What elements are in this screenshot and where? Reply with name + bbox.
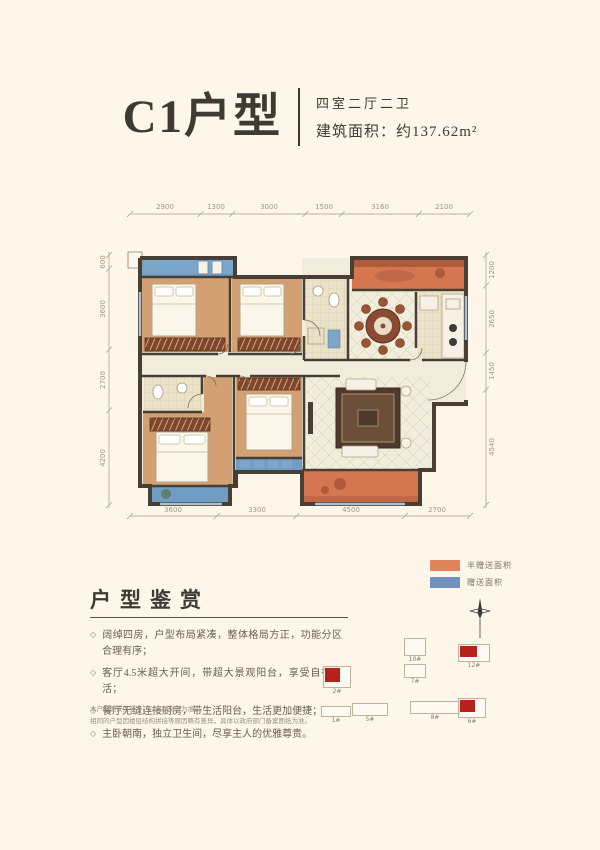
dim-right-4: 4540 [488,438,496,456]
review-heading: 户型鉴赏 [90,584,210,614]
bullet-text: 主卧朝南，独立卫生间，尽享主人的优雅尊贵。 [102,727,312,743]
dim-left-2: 3600 [99,300,107,318]
legend-half-gift: 半赠送面积 [430,560,512,571]
dim-bottom-3: 4500 [342,506,360,514]
rooms-spec: 四室二厅二卫 [316,93,477,112]
dim-right-3: 1450 [488,362,496,380]
gift-label: 赠送面积 [467,577,503,588]
half-gift-label: 半赠送面积 [467,560,512,571]
compass-icon [465,598,495,640]
building-highlighted: 6# [458,698,486,718]
header: C1户型 四室二厅二卫 建筑面积：约137.62m² [0,88,600,146]
dim-top-6: 2100 [435,203,453,211]
header-divider [298,88,300,146]
dim-left-1: 600 [99,255,107,268]
disclaimer-line: 本户型图仅供参考，以实际交付为准。 [90,704,340,716]
bullet-marker: ◇ [90,729,96,743]
building: 8# [410,701,460,714]
toilet-1 [329,293,339,307]
bed-2 [240,284,284,336]
disclaimer-line: 相同的户型因楼层结构拼接等原因略有差异，具体以政府部门备案图纸为准。 [90,716,340,728]
half-gift-swatch [430,560,460,571]
bullet-marker: ◇ [90,668,96,697]
building-label: 5# [366,716,375,723]
bullet-text: 阔绰四房，户型布局紧凑，整体格局方正，功能分区合理有序； [102,628,342,659]
building: 5# [352,703,388,716]
dim-top-4: 1500 [315,203,333,211]
sink-1 [313,286,323,296]
dim-top-5: 3160 [371,203,389,211]
building-marker [325,668,340,682]
disclaimer: 本户型图仅供参考，以实际交付为准。 相同的户型因楼层结构拼接等原因略有差异，具体… [90,704,340,729]
building-label: 12# [468,662,481,669]
legend: 半赠送面积 赠送面积 [430,560,512,588]
building-label: 2# [333,688,342,695]
dim-left-3: 2700 [99,371,107,389]
building: 7# [404,664,426,678]
dim-right-1: 1200 [488,261,496,279]
bullet-marker: ◇ [90,630,96,659]
building: 1# [321,706,351,717]
dim-left-4: 4200 [99,449,107,467]
wardrobe-1 [145,338,225,351]
header-subtitle: 四室二厅二卫 建筑面积：约137.62m² [316,93,477,141]
floor-plan [85,195,515,530]
bullet-item: ◇ 阔绰四房，户型布局紧凑，整体格局方正，功能分区合理有序； [90,628,342,659]
dim-bottom-1: 3600 [164,506,182,514]
dining-table [355,298,412,355]
building-marker [460,646,477,657]
bed-3 [238,378,300,450]
building-highlighted: 12# [458,644,490,662]
bullet-item: ◇ 主卧朝南，独立卫生间，尽享主人的优雅尊贵。 [90,727,342,743]
gift-swatch [430,577,460,588]
building-highlighted: 2# [323,666,351,688]
review-rule [90,617,348,618]
review-bullets: ◇ 阔绰四房，户型布局紧凑，整体格局方正，功能分区合理有序； ◇ 客厅4.5米超… [90,628,342,749]
unit-title: C1户型 [123,94,282,141]
bed-1 [152,284,196,336]
dim-top-3: 3000 [260,203,278,211]
bed-master [150,418,210,482]
building-label: 8# [431,714,440,721]
area-spec: 建筑面积：约137.62m² [316,120,477,141]
building-label: 1# [332,717,341,724]
building-label: 6# [468,718,477,725]
wardrobe-2 [238,338,300,351]
building: 10# [404,638,426,656]
floorplan-flyer: C1户型 四室二厅二卫 建筑面积：约137.62m² [0,0,600,850]
building-label: 10# [409,656,422,663]
sink-master [177,383,187,393]
dim-bottom-2: 3300 [248,506,266,514]
bullet-item: ◇ 客厅4.5米超大开间，带超大景观阳台，享受自在生活； [90,666,342,697]
bullet-text: 客厅4.5米超大开间，带超大景观阳台，享受自在生活； [102,666,342,697]
building-marker [460,700,475,712]
legend-gift: 赠送面积 [430,577,512,588]
toilet-master [153,385,163,399]
dim-bottom-4: 2700 [428,506,446,514]
building-label: 7# [411,678,420,685]
dim-top-2: 1300 [207,203,225,211]
dim-top-1: 2900 [156,203,174,211]
dim-right-2: 2650 [488,310,496,328]
site-map: 2# 10# 7# 12# 1# 5# 8# 6# [315,598,520,758]
